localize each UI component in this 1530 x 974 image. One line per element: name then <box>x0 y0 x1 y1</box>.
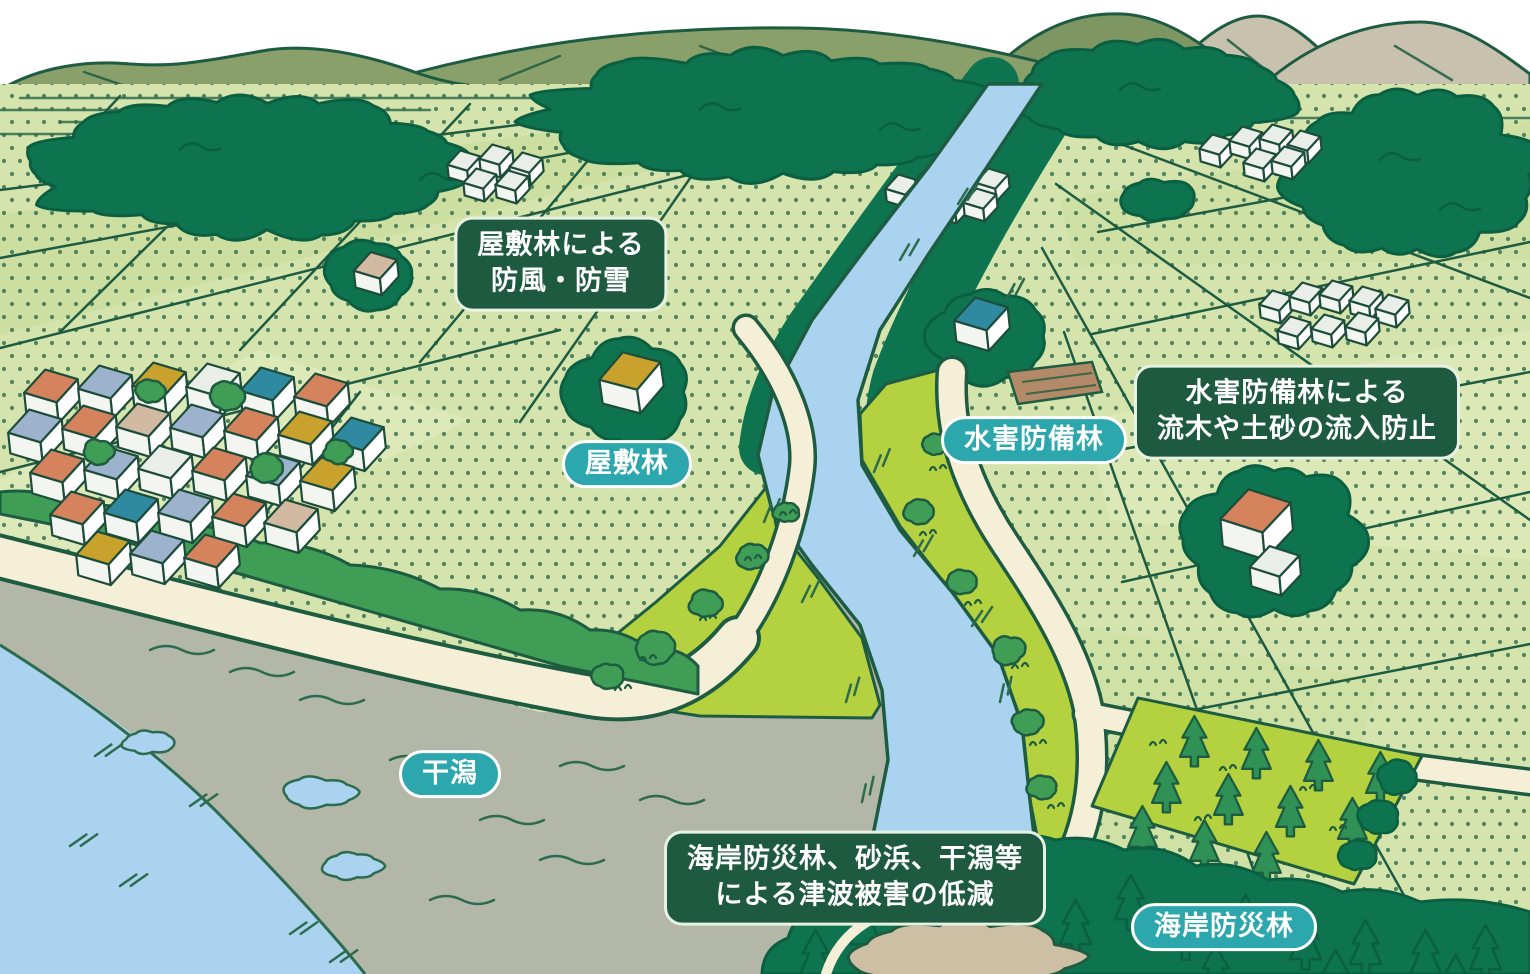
callout-suigaiboubirin-function: 水害防備林による 流木や土砂の流入防止 <box>1134 365 1460 460</box>
riverside-bush <box>1012 709 1044 735</box>
callout-line: 海岸防災林、砂浜、干潟等 <box>687 842 1023 878</box>
pill-kaiganbousairin: 海岸防災林 <box>1131 903 1317 951</box>
windbreak-hedge <box>1357 800 1398 834</box>
windbreak-hedge <box>1377 760 1416 795</box>
callout-kaiganbousairin-function: 海岸防災林、砂浜、干潟等 による津波被害の低減 <box>664 831 1046 926</box>
callout-line: 流木や土砂の流入防止 <box>1157 412 1437 448</box>
village-tree <box>135 380 165 403</box>
forest-grove <box>1121 179 1194 221</box>
riverside-bush <box>903 499 933 524</box>
riverside-bush <box>947 570 977 595</box>
pill-text: 屋敷林 <box>585 447 669 481</box>
callout-line: 防風・防雪 <box>491 264 631 300</box>
riverside-bush <box>1026 776 1056 800</box>
callout-line: 屋敷林による <box>477 228 644 264</box>
pill-suigaiboubirin: 水害防備林 <box>941 416 1127 464</box>
pill-text: 海岸防災林 <box>1154 910 1294 944</box>
pill-higata: 干潟 <box>399 750 501 798</box>
village-tree <box>210 381 245 410</box>
riverside-bush <box>591 664 623 689</box>
callout-yashikirin-function: 屋敷林による 防風・防雪 <box>454 217 667 312</box>
riverside-bush <box>636 631 675 665</box>
pill-text: 干潟 <box>422 757 478 791</box>
riverside-bush <box>736 544 768 570</box>
riverside-bush <box>689 590 723 617</box>
windbreak-hedge <box>1338 840 1376 870</box>
pill-text: 水害防備林 <box>964 423 1104 457</box>
callout-line: 水害防備林による <box>1185 376 1408 412</box>
illustration-canvas <box>0 0 1530 974</box>
callout-line: による津波被害の低減 <box>715 878 994 914</box>
forest-functions-illustration: 屋敷林による 防風・防雪 水害防備林による 流木や土砂の流入防止 海岸防災林、砂… <box>0 0 1530 974</box>
village-tree <box>251 453 283 483</box>
pill-yashikirin: 屋敷林 <box>562 440 692 488</box>
